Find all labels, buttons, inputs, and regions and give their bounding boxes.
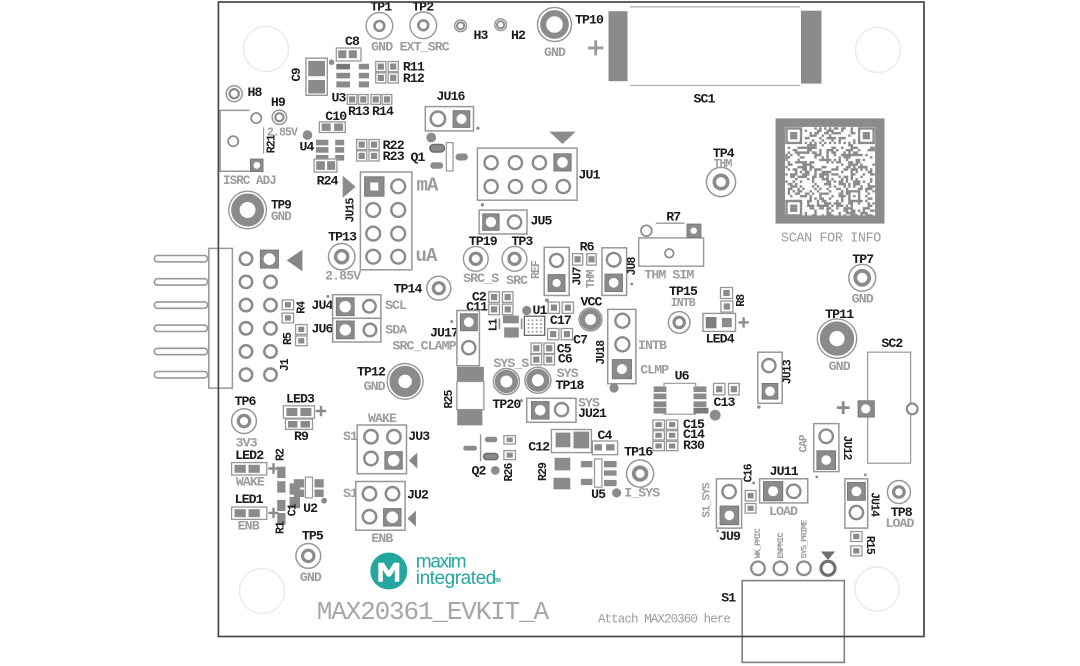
svg-text:C17: C17 xyxy=(550,313,572,328)
svg-text:WK_PMIC: WK_PMIC xyxy=(753,528,763,558)
svg-text:SCL: SCL xyxy=(385,298,407,313)
svg-text:GND: GND xyxy=(364,379,386,394)
svg-text:R2: R2 xyxy=(275,448,288,461)
svg-text:EXT_SRC: EXT_SRC xyxy=(400,40,450,55)
svg-text:JU12: JU12 xyxy=(840,435,853,460)
svg-text:integrated: integrated xyxy=(416,568,496,589)
svg-text:S1_SYS: S1_SYS xyxy=(701,482,713,518)
svg-text:Q2: Q2 xyxy=(471,464,486,479)
svg-text:R12: R12 xyxy=(403,71,425,86)
svg-text:SRC_S: SRC_S xyxy=(463,271,499,286)
svg-text:TP5: TP5 xyxy=(302,529,324,544)
svg-text:JU9: JU9 xyxy=(719,529,741,544)
svg-text:R1: R1 xyxy=(275,521,288,534)
svg-text:TP10: TP10 xyxy=(575,13,604,28)
svg-text:H2: H2 xyxy=(511,28,526,43)
svg-text:TP18: TP18 xyxy=(555,378,584,393)
svg-text:GND: GND xyxy=(829,359,851,374)
svg-text:LOAD: LOAD xyxy=(769,504,798,519)
svg-text:R9: R9 xyxy=(294,429,309,444)
svg-text:R13: R13 xyxy=(348,104,370,119)
svg-text:U2: U2 xyxy=(303,501,318,516)
svg-text:C16: C16 xyxy=(742,463,755,482)
svg-text:R5: R5 xyxy=(282,332,295,345)
svg-text:JU13: JU13 xyxy=(782,359,795,384)
svg-text:H9: H9 xyxy=(271,95,286,110)
svg-text:JU16: JU16 xyxy=(436,89,465,104)
svg-text:LED3: LED3 xyxy=(286,391,315,406)
svg-text:SDA: SDA xyxy=(385,322,407,337)
svg-text:SRC: SRC xyxy=(506,273,528,288)
svg-text:R26: R26 xyxy=(503,463,516,482)
svg-text:R23: R23 xyxy=(383,149,405,164)
svg-text:Q1: Q1 xyxy=(410,150,425,165)
svg-text:LED4: LED4 xyxy=(706,331,735,346)
svg-text:C7: C7 xyxy=(573,332,588,347)
svg-text:R4: R4 xyxy=(296,301,309,314)
svg-text:C13: C13 xyxy=(713,395,735,410)
svg-text:H3: H3 xyxy=(473,28,488,43)
svg-text:LED2: LED2 xyxy=(235,448,264,463)
svg-text:LED1: LED1 xyxy=(235,492,264,507)
svg-text:WAKE: WAKE xyxy=(368,411,397,426)
svg-text:TP14: TP14 xyxy=(393,282,422,297)
svg-text:INTB: INTB xyxy=(638,338,667,353)
svg-text:J1: J1 xyxy=(279,358,292,371)
svg-text:JU21: JU21 xyxy=(578,406,607,421)
svg-text:R30: R30 xyxy=(683,438,705,453)
svg-text:R15: R15 xyxy=(863,536,876,555)
svg-text:WAKE: WAKE xyxy=(236,474,265,489)
svg-text:C1: C1 xyxy=(287,503,300,516)
svg-text:U4: U4 xyxy=(299,140,314,155)
svg-text:SC2: SC2 xyxy=(881,336,903,351)
svg-text:THM: THM xyxy=(585,270,598,289)
svg-text:R24: R24 xyxy=(317,173,339,188)
svg-text:JU11: JU11 xyxy=(770,464,799,479)
svg-text:VCC: VCC xyxy=(580,295,602,310)
svg-text:R29: R29 xyxy=(537,462,550,481)
svg-text:TP20: TP20 xyxy=(492,397,521,412)
svg-text:SC1: SC1 xyxy=(693,92,715,107)
svg-text:JU6: JU6 xyxy=(311,321,333,336)
svg-text:L1: L1 xyxy=(488,318,501,331)
svg-text:R21: R21 xyxy=(265,134,278,153)
svg-text:JU3: JU3 xyxy=(408,429,430,444)
svg-text:H8: H8 xyxy=(247,85,262,100)
svg-text:TP6: TP6 xyxy=(234,394,256,409)
svg-text:S1: S1 xyxy=(721,591,736,606)
svg-text:THM SIM: THM SIM xyxy=(644,268,694,283)
svg-text:REF: REF xyxy=(530,260,543,279)
svg-text:JU14: JU14 xyxy=(868,492,881,517)
svg-text:R14: R14 xyxy=(372,104,394,119)
svg-text:ISRC ADJ: ISRC ADJ xyxy=(223,174,276,188)
svg-text:GND: GND xyxy=(852,291,874,306)
svg-text:JU18: JU18 xyxy=(595,340,608,365)
svg-text:JU2: JU2 xyxy=(407,488,429,503)
svg-text:U3: U3 xyxy=(331,91,346,106)
svg-text:C9: C9 xyxy=(290,68,304,82)
svg-text:C12: C12 xyxy=(528,439,550,454)
svg-text:LOAD: LOAD xyxy=(885,516,914,531)
svg-text:Attach MAX20360 here: Attach MAX20360 here xyxy=(598,613,730,627)
svg-text:GND: GND xyxy=(544,45,566,60)
svg-text:MAX20361_EVKIT_A: MAX20361_EVKIT_A xyxy=(317,597,550,627)
svg-text:SRC_CLAMP: SRC_CLAMP xyxy=(393,338,457,353)
svg-text:JU15: JU15 xyxy=(344,198,357,223)
svg-text:U5: U5 xyxy=(591,487,606,502)
svg-text:GND: GND xyxy=(371,40,393,55)
svg-text:JU4: JU4 xyxy=(311,298,333,313)
svg-text:R25: R25 xyxy=(443,390,456,409)
svg-text:SCAN FOR INFO: SCAN FOR INFO xyxy=(781,232,881,247)
svg-text:ENB: ENB xyxy=(238,518,260,533)
svg-text:TM: TM xyxy=(495,578,501,584)
svg-text:mA: mA xyxy=(416,175,439,197)
svg-text:uA: uA xyxy=(415,245,438,267)
svg-text:INTB: INTB xyxy=(671,297,696,310)
svg-text:TP13: TP13 xyxy=(328,230,357,245)
svg-text:TP16: TP16 xyxy=(624,445,653,460)
svg-text:SYS_PRIME: SYS_PRIME xyxy=(799,520,809,559)
svg-text:R8: R8 xyxy=(735,294,748,307)
svg-text:JU8: JU8 xyxy=(626,257,639,276)
svg-text:TP12: TP12 xyxy=(357,365,386,380)
svg-text:ENPMIC: ENPMIC xyxy=(776,532,786,558)
svg-text:R6: R6 xyxy=(580,240,595,255)
svg-text:U6: U6 xyxy=(675,369,690,384)
svg-text:2.85V: 2.85V xyxy=(325,269,361,284)
svg-text:S1: S1 xyxy=(343,429,358,444)
svg-text:JU5: JU5 xyxy=(530,214,552,229)
svg-text:ENB: ENB xyxy=(371,531,393,546)
svg-text:CAP: CAP xyxy=(799,434,811,452)
svg-text:JU7: JU7 xyxy=(572,267,585,286)
svg-text:JU1: JU1 xyxy=(578,168,600,183)
svg-text:I_SYS: I_SYS xyxy=(624,486,660,501)
svg-text:C6: C6 xyxy=(558,351,573,366)
svg-text:R7: R7 xyxy=(666,210,681,225)
svg-text:C8: C8 xyxy=(345,34,360,49)
svg-text:GND: GND xyxy=(271,210,292,224)
svg-text:CLMP: CLMP xyxy=(640,362,669,377)
svg-text:GND: GND xyxy=(300,570,322,585)
svg-text:SYS_S: SYS_S xyxy=(493,356,529,371)
